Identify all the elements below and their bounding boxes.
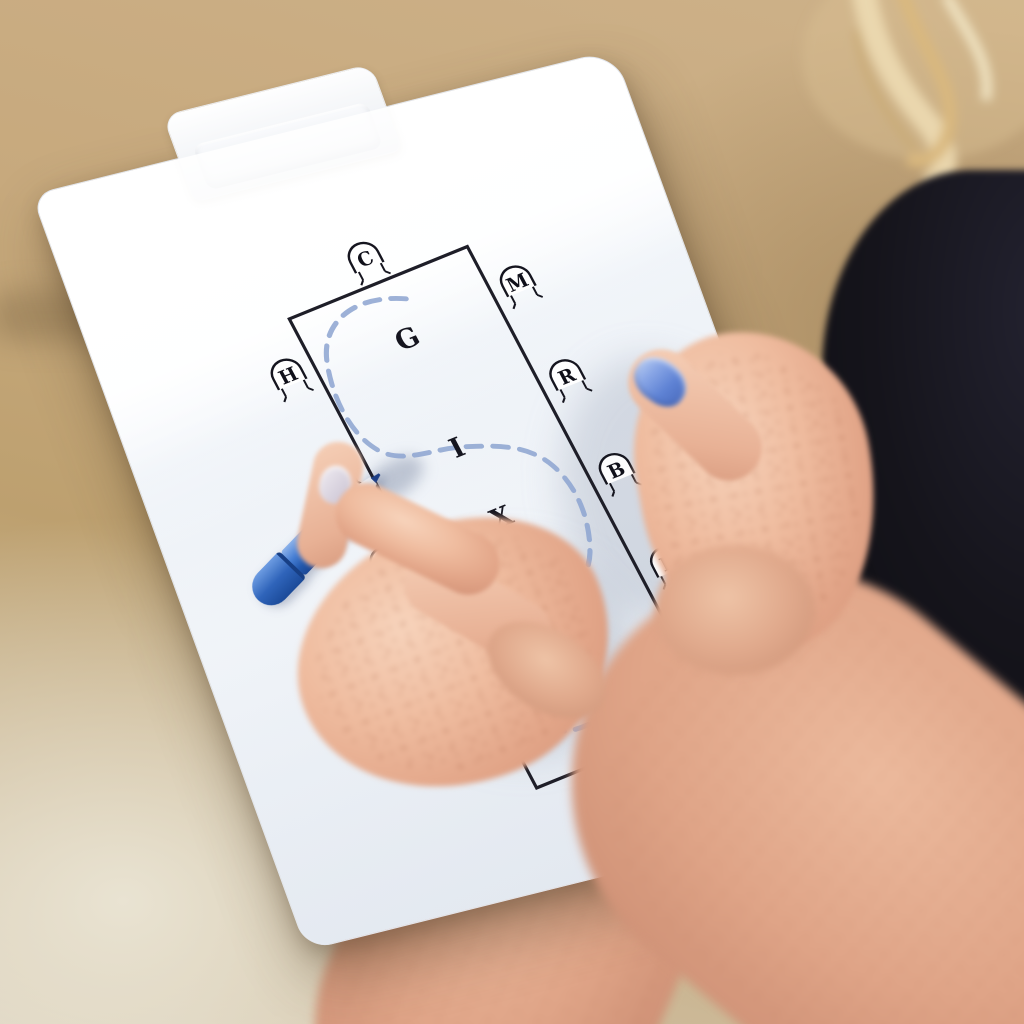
right-hand-knuckle [655,545,815,675]
arena-letter-g: G [390,321,426,357]
letter-marker-r-icon: R [544,356,592,403]
letter-marker-c-icon: C [343,238,391,285]
letter-marker-h-icon: H [266,355,314,402]
letter-marker-m-icon: M [495,262,543,309]
photo-scene: C M R B P [0,0,1024,1024]
